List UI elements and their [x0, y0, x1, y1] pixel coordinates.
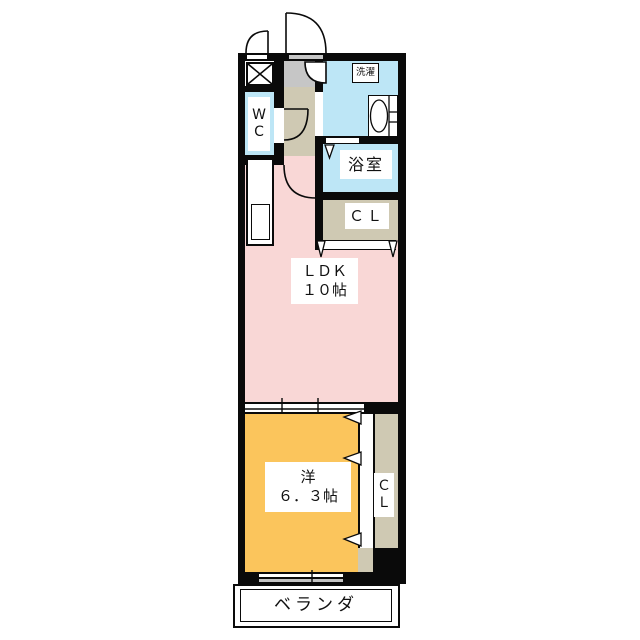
floorplan-image: ベランダ [0, 0, 640, 640]
wall-bathroom-closet [315, 192, 406, 200]
entry-main-threshold [288, 54, 324, 60]
entry-side-threshold [246, 54, 268, 60]
bedroom-label: 洋 ６．３帖 [265, 462, 351, 512]
closet-upper-label: ＣＬ [345, 203, 389, 229]
kitchen-sink [251, 204, 270, 240]
sliding-door-strip [245, 402, 364, 414]
closet-bedroom-label: Ｃ Ｌ [374, 473, 394, 517]
closet-upper-door-strip [323, 240, 396, 250]
ldk-label: ＬＤＫ １０帖 [291, 258, 358, 304]
laundry-label: 洗濯 [352, 63, 379, 83]
window-sash-lower [258, 578, 344, 583]
wall-wc-hall-upper [274, 92, 284, 108]
bedroom-label-line1: 洋 [300, 468, 315, 487]
washbasin-unit [368, 95, 398, 137]
wc-label-line2: C [254, 124, 264, 142]
closet-bedroom-label-line2: Ｌ [377, 495, 391, 513]
bathroom-label: 浴室 [340, 150, 392, 179]
room-hallway [284, 87, 315, 156]
wc-label: W C [248, 97, 270, 151]
wall-bedroom-top-right [364, 402, 398, 414]
room-genkan-entry [284, 61, 315, 87]
closet-bedroom-door-strip [358, 414, 375, 548]
wc-label-line1: W [252, 107, 266, 125]
ldk-label-line2: １０帖 [302, 281, 347, 300]
wall-closet-bedroom-bottom [373, 548, 406, 572]
ldk-label-line1: ＬＤＫ [302, 262, 347, 281]
wall-right [398, 53, 406, 584]
bathroom-door-opening [325, 137, 360, 144]
closet-bedroom-label-line1: Ｃ [377, 478, 391, 496]
wall-left [238, 53, 245, 584]
bedroom-label-line2: ６．３帖 [278, 487, 338, 506]
entry-door-swing-small [246, 31, 268, 53]
pipe-space-box [246, 62, 274, 86]
entry-door-swing-main [286, 13, 326, 53]
veranda-label: ベランダ [240, 589, 392, 622]
